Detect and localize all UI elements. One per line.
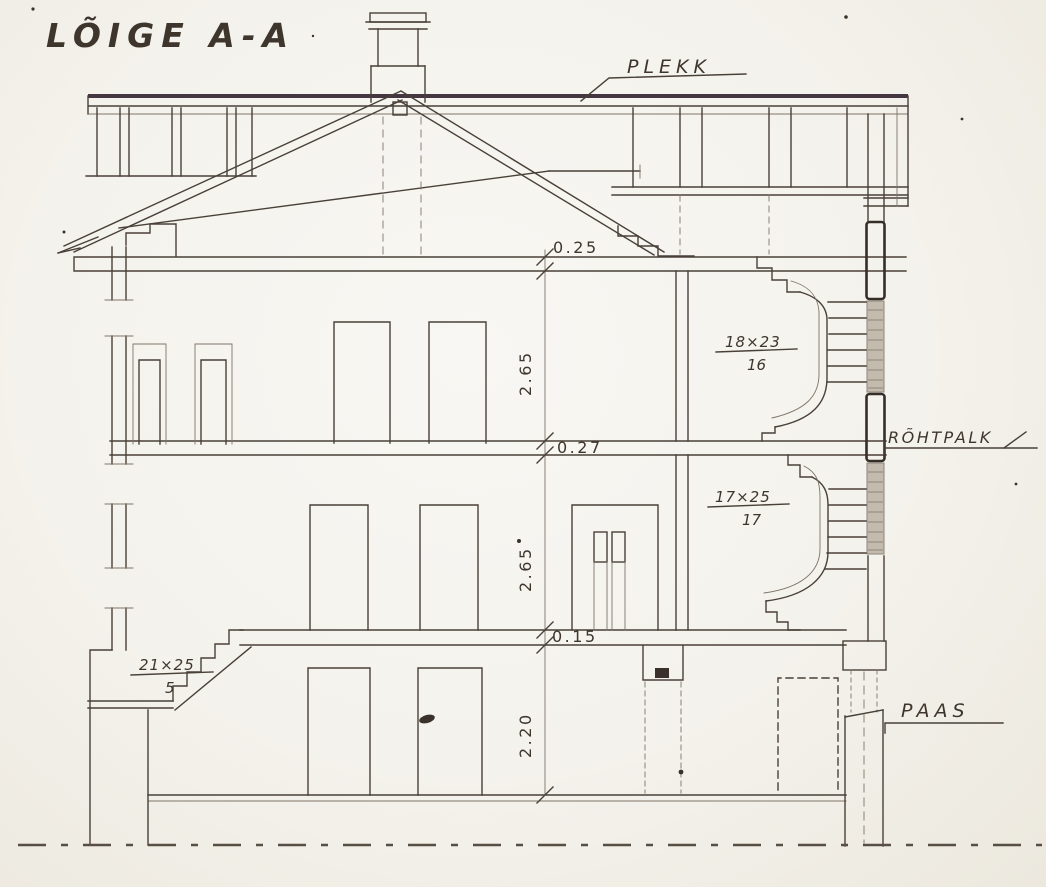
staircase-lower-flight [764,455,866,630]
floor-slabs [74,257,906,801]
stair-lower-count: 17 [742,511,762,529]
interior-partitions [676,271,688,630]
chimney [366,13,430,102]
ground-floor-doors [310,505,658,630]
dim-ground-slab: 0.15 [552,627,598,646]
stair-entry-count: 5 [165,679,175,697]
dim-basement-height: 2.20 [516,712,535,758]
stair-upper-size: 18×23 [725,333,781,351]
stair-entry-size: 21×25 [139,656,195,674]
drawing-title: LÕIGE A-A [46,15,295,55]
section-drawing: 0.25 2.65 0.27 2.65 0.15 2.20 LÕIGE A-A … [0,0,1046,887]
dim-lower-height: 2.65 [516,546,535,592]
foundation-pad [843,641,886,670]
stair-formula-lower: 17×25 17 [708,488,789,529]
label-rohtpalk: RÕHTPALK [888,428,993,447]
left-exterior-wall [90,247,148,845]
stair-lower-size: 17×25 [715,488,771,506]
stair-formula-upper: 18×23 16 [716,333,797,374]
basement-doors [308,646,838,795]
paas-leader-line [885,723,1003,733]
dim-upper-height: 2.65 [516,350,535,396]
dimension-chain: 0.25 2.65 0.27 2.65 0.15 2.20 [516,238,603,803]
roof-structure [58,91,908,256]
overwrite-mark [1004,432,1026,448]
upper-floor-doors [133,322,486,444]
stair-upper-count: 16 [747,356,766,374]
dim-attic-slab: 0.25 [553,238,599,257]
label-paas: PAAS [901,700,970,722]
scanned-blueprint-page: 0.25 2.65 0.27 2.65 0.15 2.20 LÕIGE A-A … [0,0,1046,887]
dim-middle-slab: 0.27 [557,438,603,457]
